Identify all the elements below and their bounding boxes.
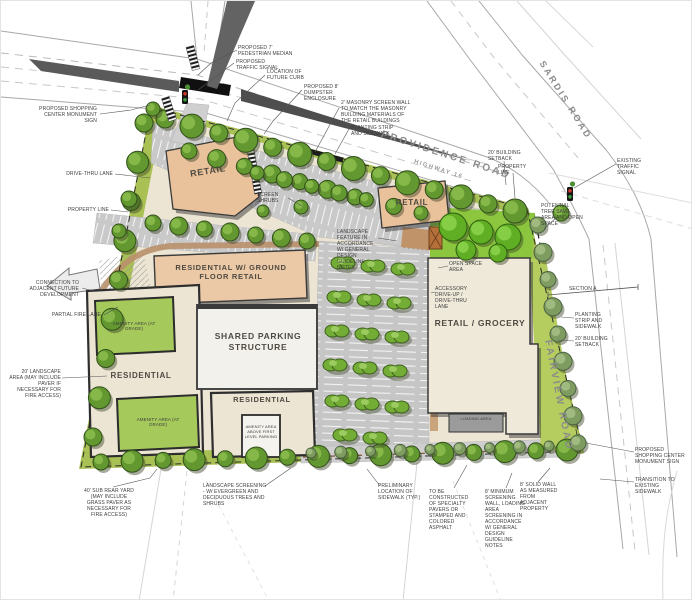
existing-traffic-signal-icon [567,181,575,201]
note-connection: CONNECTION TO ADJACENT FUTURE DEVELOPMEN… [17,280,79,298]
label-retail-n: RETAIL [381,198,443,208]
note-setback-ne: 20' BUILDING SETBACK [488,150,522,162]
note-landscape-feature: LANDSCAPE FEATURE IN ACCORDANCE W/ GENER… [337,229,381,271]
note-pavers: TO BE CONSTRUCTED OF SPECIALTY PAVERS OR… [429,489,477,531]
note-rear-yard-40: 40' SUB REAR YARD (MAY INCLUDE GRASS PAV… [81,488,137,518]
label-parking-structure: SHARED PARKING STRUCTURE [201,331,315,352]
note-transition-sidewalk: TRANSITION TO EXISTING SIDEWALK [635,477,679,495]
label-amenity-above: AMENITY AREA ABOVE FIRST LEVEL PARKING [243,425,279,439]
note-prelim-sidewalk: PRELIMINARY LOCATION OF SIDEWALK (TYP.) [378,483,424,501]
label-amenity-sw: AMENITY AREA (AT GRADE) [127,417,189,428]
note-open-space: OPEN SPACE AREA [449,261,491,273]
note-monument-se: PROPOSED SHOPPING CENTER MONUMENT SIGN [635,447,685,465]
note-landscape-screening: LANDSCAPE SCREENING - W/ EVERGREEN AND D… [203,483,269,507]
note-planting-strip-n: PLANTING STRIP AND SIDEWALK [351,125,405,137]
note-solid-wall-8: 8' SOLID WALL AS MEASURED FROM ADJACENT … [520,482,560,512]
note-partial-fire-lane: PARTIAL FIRE LANE [47,312,101,318]
label-grocery: RETAIL / GROCERY [429,318,531,329]
note-setback-e: 20' BUILDING SETBACK [575,336,609,348]
note-property-line-west: PROPERTY LINE [61,207,109,213]
label-residential-west: RESIDENTIAL [97,371,185,381]
note-property-line-ne: PROPERTY LINE [498,164,532,176]
note-landscape-20: 20' LANDSCAPE AREA (MAY INCLUDE PAVER IF… [9,369,61,399]
note-existing-signal: EXISTING TRAFFIC SIGNAL [617,158,655,176]
note-monument-west: PROPOSED SHOPPING CENTER MONUMENT SIGN [31,106,97,124]
building-grocery [428,258,538,434]
label-residential-south: RESIDENTIAL [217,395,307,404]
note-drive-thru: DRIVE-THRU LANE [61,171,113,177]
note-tree-save: POTENTIAL TREE SAVE AREA AND OPEN SPACE [541,203,583,227]
site-plan-canvas: PROVIDENCE ROAD HIGHWAY 16 SARDIS ROAD F… [0,0,692,600]
note-pedestrian-median: PROPOSED 7' PEDESTRIAN MEDIAN [238,45,304,57]
note-future-curb: LOCATION OF FUTURE CURB [267,69,321,81]
note-planting-strip-e: PLANTING STRIP AND SIDEWALK [575,312,613,330]
note-screen-shrubs: SCREEN SHRUBS [257,192,289,204]
note-masonry-wall: 2' MASONRY SCREEN WALL TO MATCH THE MASO… [341,100,413,124]
label-amenity-nw: AMENITY AREA (AT GRADE) [103,321,165,332]
label-res-gfr: RESIDENTIAL w/ GROUND FLOOR RETAIL [161,263,301,282]
note-accessory-drive: ACCESSORY DRIVE-UP / DRIVE-THRU LANE [435,286,481,310]
label-loading-area: LOADING AREA [451,417,501,422]
note-section-a: SECTION A [569,286,603,292]
